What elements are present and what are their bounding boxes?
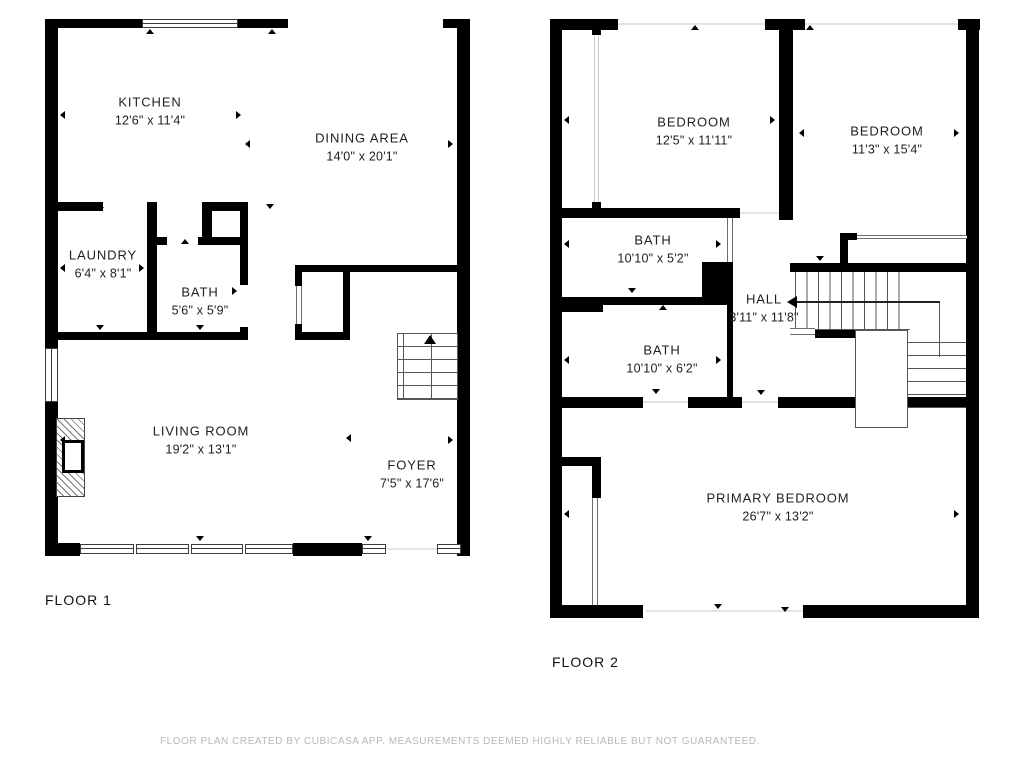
measure-marker-icon (96, 325, 104, 330)
measure-marker-icon (60, 111, 65, 119)
measure-marker-icon (770, 116, 775, 124)
measure-marker-icon (564, 356, 569, 364)
measure-marker-icon (816, 256, 824, 261)
room-label-dining-area: DINING AREA 14'0" x 20'1" (315, 131, 409, 164)
staircase-lower-flight (908, 330, 966, 408)
measure-marker-icon (146, 29, 154, 34)
room-name: FOYER (380, 458, 444, 473)
measure-marker-icon (564, 116, 569, 124)
measure-marker-icon (448, 436, 453, 444)
stair-rail (790, 328, 815, 335)
measure-marker-icon (448, 140, 453, 148)
measure-marker-icon (781, 607, 789, 612)
door-opening (742, 401, 778, 403)
wall (240, 211, 248, 285)
measure-marker-icon (628, 288, 636, 293)
wall (157, 237, 167, 245)
room-dims: 10'10" x 5'2" (617, 252, 688, 266)
room-label-bath1: BATH 5'6" x 5'9" (172, 285, 229, 318)
measure-marker-icon (346, 434, 351, 442)
wall (778, 397, 855, 408)
measure-marker-icon (60, 436, 65, 444)
window (437, 544, 461, 554)
window (45, 348, 58, 402)
closet-door (296, 286, 302, 324)
room-name: HALL (729, 292, 798, 307)
wall (550, 19, 618, 30)
wall (212, 202, 248, 211)
door-opening (387, 548, 437, 550)
measure-marker-icon (232, 287, 237, 295)
room-dims: 19'2" x 13'1" (153, 443, 250, 457)
room-label-bath-lower: BATH 10'10" x 6'2" (626, 343, 697, 376)
measure-marker-icon (196, 536, 204, 541)
stair-stringer (403, 334, 404, 399)
measure-marker-icon (266, 204, 274, 209)
wall (592, 457, 601, 498)
staircase-landing (855, 330, 908, 428)
room-dims: 12'5" x 11'11" (656, 134, 732, 148)
room-label-foyer: FOYER 7'5" x 17'6" (380, 458, 444, 491)
stairs-direction-line (795, 301, 940, 303)
wall (45, 202, 103, 211)
measure-marker-icon (799, 129, 804, 137)
measure-marker-icon (652, 389, 660, 394)
measure-marker-icon (954, 129, 959, 137)
wall (592, 202, 601, 210)
room-name: BATH (172, 285, 229, 300)
wall (779, 19, 793, 220)
wall (840, 233, 857, 240)
room-name: BATH (617, 233, 688, 248)
wall (45, 19, 142, 28)
measure-marker-icon (628, 210, 636, 215)
room-dims: 11'3" x 15'4" (850, 143, 923, 157)
wall (550, 19, 562, 618)
measure-marker-icon (245, 140, 250, 148)
measure-marker-icon (60, 264, 65, 272)
measure-marker-icon (806, 25, 814, 30)
room-dims: 12'6" x 11'4" (115, 114, 185, 128)
room-name: LIVING ROOM (153, 424, 250, 439)
wall (550, 297, 603, 312)
disclaimer-text: FLOOR PLAN CREATED BY CUBICASA APP. MEAS… (0, 736, 920, 747)
floor-plan-canvas: KITCHEN 12'6" x 11'4" DINING AREA 14'0" … (0, 0, 1024, 768)
closet-partition (592, 498, 598, 605)
measure-marker-icon (196, 325, 204, 330)
bath-door-opening (727, 218, 733, 262)
measure-marker-icon (691, 25, 699, 30)
closet-door-track (857, 235, 967, 239)
door-opening (646, 610, 803, 612)
measure-marker-icon (659, 305, 667, 310)
wall (790, 263, 973, 272)
room-label-kitchen: KITCHEN 12'6" x 11'4" (115, 95, 185, 128)
wall (457, 19, 470, 556)
measure-marker-icon (364, 536, 372, 541)
room-dims: 10'10" x 6'2" (626, 362, 697, 376)
room-label-bath-upper: BATH 10'10" x 5'2" (617, 233, 688, 266)
wall (293, 543, 362, 556)
room-name: DINING AREA (315, 131, 409, 146)
measure-marker-icon (564, 240, 569, 248)
wall (295, 332, 350, 340)
room-label-living-room: LIVING ROOM 19'2" x 13'1" (153, 424, 250, 457)
stairs-up-arrow-icon (424, 335, 436, 344)
measure-marker-icon (268, 29, 276, 34)
door-opening (643, 401, 688, 403)
wall (147, 202, 157, 340)
measure-marker-icon (236, 111, 241, 119)
wall (592, 27, 601, 35)
room-dims: 3'11" x 11'8" (729, 311, 798, 325)
measure-marker-icon (96, 203, 104, 208)
wall (815, 330, 857, 338)
closet-partition (594, 35, 599, 202)
room-name: BEDROOM (850, 124, 923, 139)
room-label-hall: HALL 3'11" x 11'8" (729, 292, 798, 325)
room-dims: 26'7" x 13'2" (706, 510, 849, 524)
room-name: BATH (626, 343, 697, 358)
window (142, 19, 238, 28)
room-label-laundry: LAUNDRY 6'4" x 8'1" (69, 248, 137, 281)
room-dims: 14'0" x 20'1" (315, 150, 409, 164)
room-dims: 5'6" x 5'9" (172, 304, 229, 318)
measure-marker-icon (366, 267, 374, 272)
wall (550, 397, 643, 408)
window (191, 544, 243, 554)
wall (803, 605, 973, 618)
window (362, 544, 386, 554)
room-label-primary-bedroom: PRIMARY BEDROOM 26'7" x 13'2" (706, 491, 849, 524)
room-dims: 7'5" x 17'6" (380, 477, 444, 491)
door-opening (740, 212, 779, 214)
fireplace-box (62, 440, 84, 473)
wall (45, 19, 58, 348)
room-label-bedroom2: BEDROOM 11'3" x 15'4" (850, 124, 923, 157)
wall (550, 605, 643, 618)
room-dims: 6'4" x 8'1" (69, 267, 137, 281)
measure-marker-icon (757, 390, 765, 395)
measure-marker-icon (716, 356, 721, 364)
floor2-title: FLOOR 2 (552, 654, 619, 670)
wall (295, 265, 457, 272)
wall (688, 397, 742, 408)
wall (45, 332, 248, 340)
measure-marker-icon (714, 604, 722, 609)
wall (603, 297, 733, 305)
measure-marker-icon (564, 510, 569, 518)
wall (343, 272, 350, 340)
wall (966, 19, 979, 618)
room-label-bedroom1: BEDROOM 12'5" x 11'11" (656, 115, 732, 148)
wall (45, 543, 80, 556)
wall (727, 262, 733, 408)
wall (295, 272, 302, 286)
room-name: LAUNDRY (69, 248, 137, 263)
measure-marker-icon (139, 264, 144, 272)
measure-marker-icon (954, 510, 959, 518)
wall (238, 19, 288, 28)
wall (550, 208, 740, 218)
window (136, 544, 189, 554)
measure-marker-icon (716, 240, 721, 248)
wall (461, 543, 470, 556)
measure-marker-icon (181, 239, 189, 244)
window (245, 544, 293, 554)
window-opening (805, 23, 958, 25)
window (80, 544, 134, 554)
room-name: PRIMARY BEDROOM (706, 491, 849, 506)
room-name: KITCHEN (115, 95, 185, 110)
stairs-direction-line (939, 301, 940, 357)
floor1-title: FLOOR 1 (45, 592, 112, 608)
room-name: BEDROOM (656, 115, 732, 130)
